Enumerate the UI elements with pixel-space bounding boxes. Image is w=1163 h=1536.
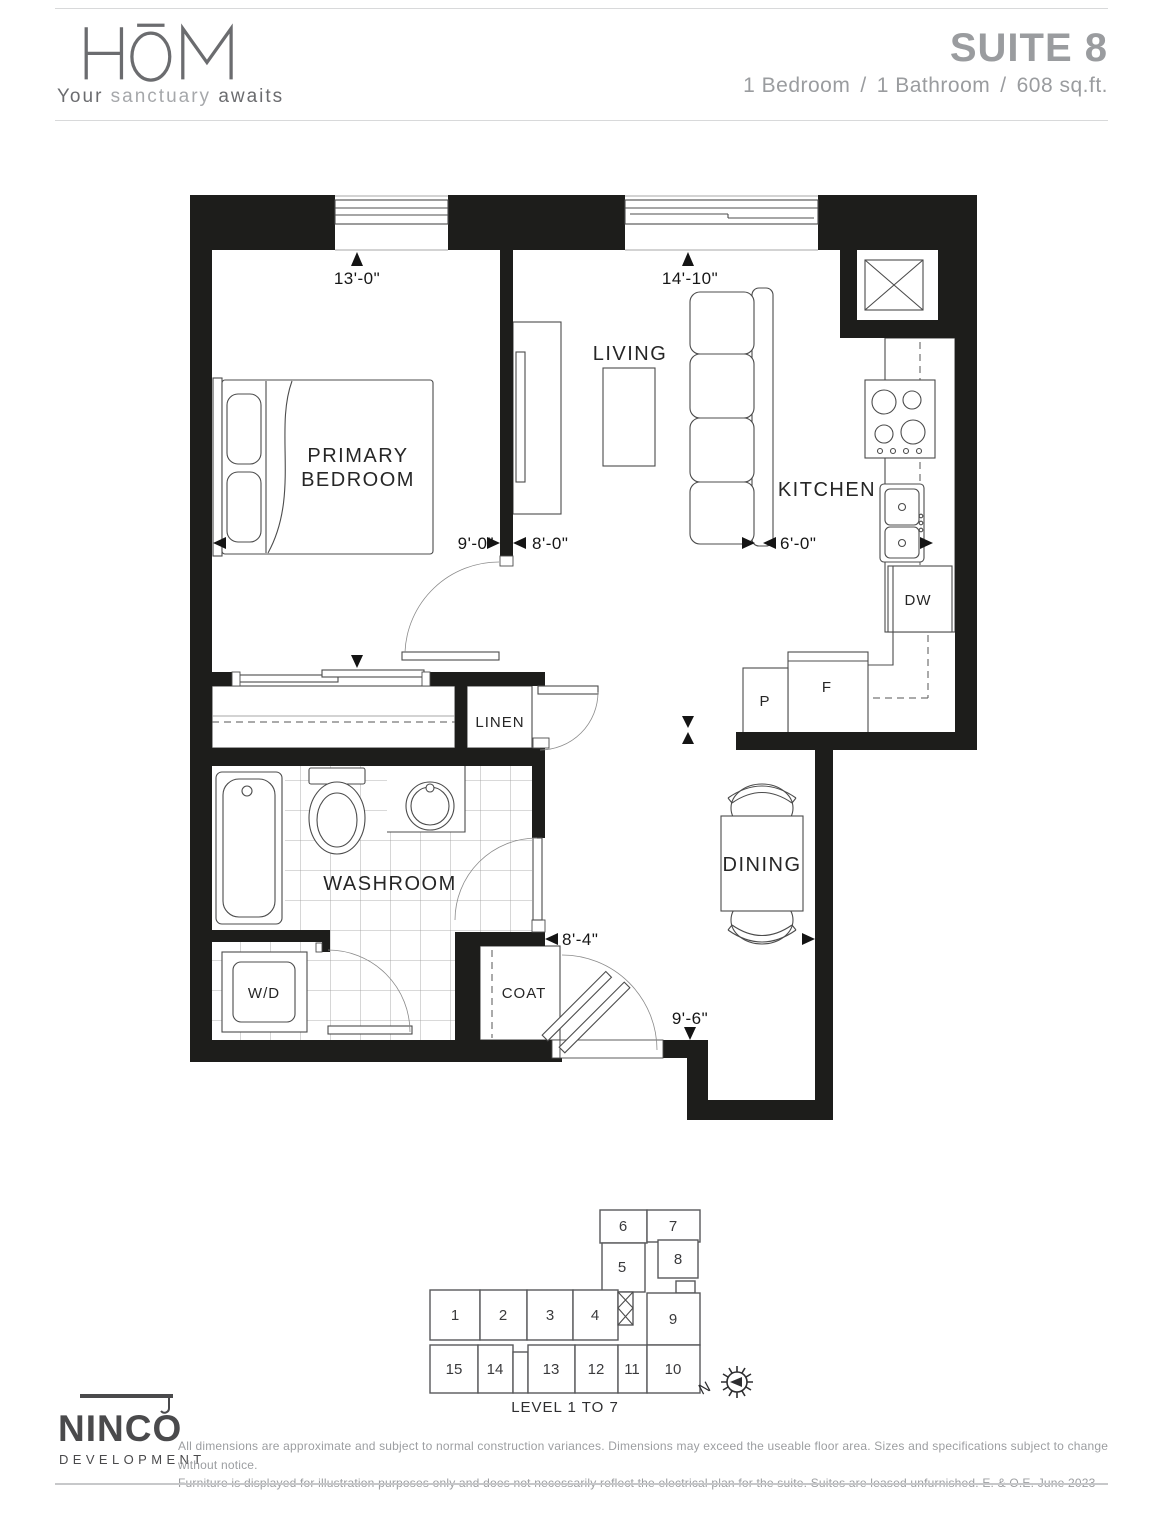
label-washer-dryer: W/D xyxy=(248,985,280,1002)
dimension-entry-width: 9'-6" xyxy=(672,1009,708,1040)
tv-console xyxy=(513,322,561,514)
keyplan-label: 15 xyxy=(446,1361,463,1378)
coffee-table xyxy=(603,368,655,466)
keyplan-label: 11 xyxy=(624,1361,640,1378)
toilet xyxy=(309,768,365,854)
room-label-linen: LINEN xyxy=(475,714,524,731)
brand-name: NINCO xyxy=(58,1408,182,1449)
keyplan-shaft-icon xyxy=(618,1292,633,1325)
dimension-bedroom-window: 13'-0" xyxy=(334,252,380,288)
keyplan-label: 12 xyxy=(588,1361,605,1378)
room-label-dining: DINING xyxy=(723,854,802,876)
label-pantry: P xyxy=(759,693,770,710)
keyplan-label-highlighted: 8 xyxy=(674,1251,682,1268)
keyplan-label: 5 xyxy=(618,1259,626,1276)
north-compass-icon: N xyxy=(696,1366,753,1399)
bedroom-window xyxy=(335,196,448,250)
label-dishwasher: DW xyxy=(905,592,932,609)
room-label-washroom: WASHROOM xyxy=(323,873,456,895)
room-label-coat: COAT xyxy=(502,985,547,1002)
keyplan-label: 10 xyxy=(665,1361,682,1378)
keyplan-label: 4 xyxy=(591,1307,599,1324)
living-window xyxy=(625,196,818,250)
disclaimer-line: All dimensions are approximate and subje… xyxy=(178,1437,1128,1474)
floorplan-page: Your sanctuary awaits SUITE 8 1 Bedroom/… xyxy=(0,0,1163,1536)
dimension-living-window: 14'-10" xyxy=(662,252,718,288)
room-label-primary-bedroom-line2: BEDROOM xyxy=(301,469,415,491)
svg-text:6'-0": 6'-0" xyxy=(780,534,816,553)
bed xyxy=(213,378,433,556)
svg-text:13'-0": 13'-0" xyxy=(334,269,380,288)
svg-text:8'-4": 8'-4" xyxy=(562,930,598,949)
keyplan-stairs-icon xyxy=(676,1281,695,1293)
room-label-primary-bedroom-line1: PRIMARY xyxy=(307,445,408,467)
keyplan-label: 9 xyxy=(669,1311,677,1328)
svg-text:8'-0": 8'-0" xyxy=(532,534,568,553)
bedroom-closet xyxy=(212,670,455,748)
label-fridge: F xyxy=(822,679,832,696)
keyplan-label: 3 xyxy=(546,1307,554,1324)
bedroom-door xyxy=(402,562,499,660)
footer-divider xyxy=(55,1483,1108,1485)
sofa xyxy=(690,288,773,546)
svg-text:9'-6": 9'-6" xyxy=(672,1009,708,1028)
closet-marker xyxy=(351,655,363,668)
room-label-kitchen: KITCHEN xyxy=(778,479,876,501)
keyplan-stairs-icon xyxy=(513,1352,528,1393)
opening-marker xyxy=(682,716,694,744)
floorplan-drawing: PRIMARY BEDROOM LIVING KITCHEN WASHROOM … xyxy=(0,0,1163,1536)
keyplan-label: 6 xyxy=(619,1218,627,1235)
compass-north-label: N xyxy=(696,1378,714,1398)
keyplan-label: 1 xyxy=(451,1307,459,1324)
vanity-sink xyxy=(387,766,465,832)
keyplan-label: 13 xyxy=(543,1361,560,1378)
svg-text:14'-10": 14'-10" xyxy=(662,269,718,288)
keyplan-label: 7 xyxy=(669,1218,677,1235)
keyplan-label: 2 xyxy=(499,1307,507,1324)
keyplan-label: 14 xyxy=(487,1361,504,1378)
bathtub xyxy=(216,772,282,924)
keyplan: 1 2 3 4 5 6 7 8 9 10 11 12 13 14 15 LEVE… xyxy=(430,1210,753,1416)
keyplan-level-label: LEVEL 1 TO 7 xyxy=(511,1399,619,1416)
stove xyxy=(865,380,935,458)
room-label-living: LIVING xyxy=(593,343,668,365)
kitchen-sink xyxy=(880,484,924,562)
mechanical-shaft xyxy=(857,250,938,320)
